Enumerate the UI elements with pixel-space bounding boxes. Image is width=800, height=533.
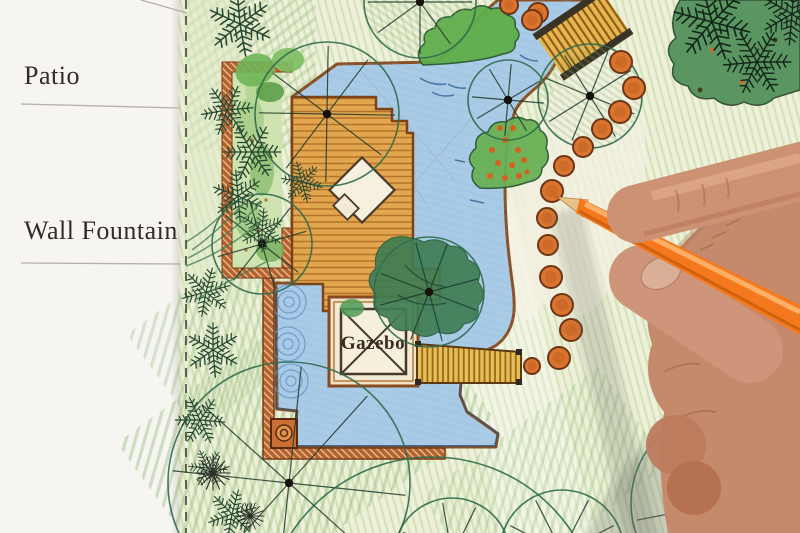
- stepping-stone: [538, 235, 558, 255]
- stepping-stone: [522, 10, 542, 30]
- curled-finger: [667, 461, 721, 515]
- stepping-stone: [548, 347, 570, 369]
- patio-label: Patio: [24, 61, 80, 90]
- stepping-stone: [524, 358, 540, 374]
- stepping-stone: [623, 77, 645, 99]
- photo-landscape-plan: Gazebo: [0, 0, 800, 533]
- stepping-stone: [551, 294, 573, 316]
- stepping-stone: [500, 0, 518, 14]
- stepping-stone: [610, 51, 632, 73]
- wall-fountain-label: Wall Fountain: [24, 216, 178, 245]
- stepping-stone: [609, 101, 631, 123]
- stepping-stone: [554, 156, 574, 176]
- pencil-point: [555, 195, 559, 199]
- stepping-stone: [592, 119, 612, 139]
- stepping-stone: [540, 266, 562, 288]
- stepping-stone: [573, 137, 593, 157]
- paper-fold-edge: [171, 0, 183, 533]
